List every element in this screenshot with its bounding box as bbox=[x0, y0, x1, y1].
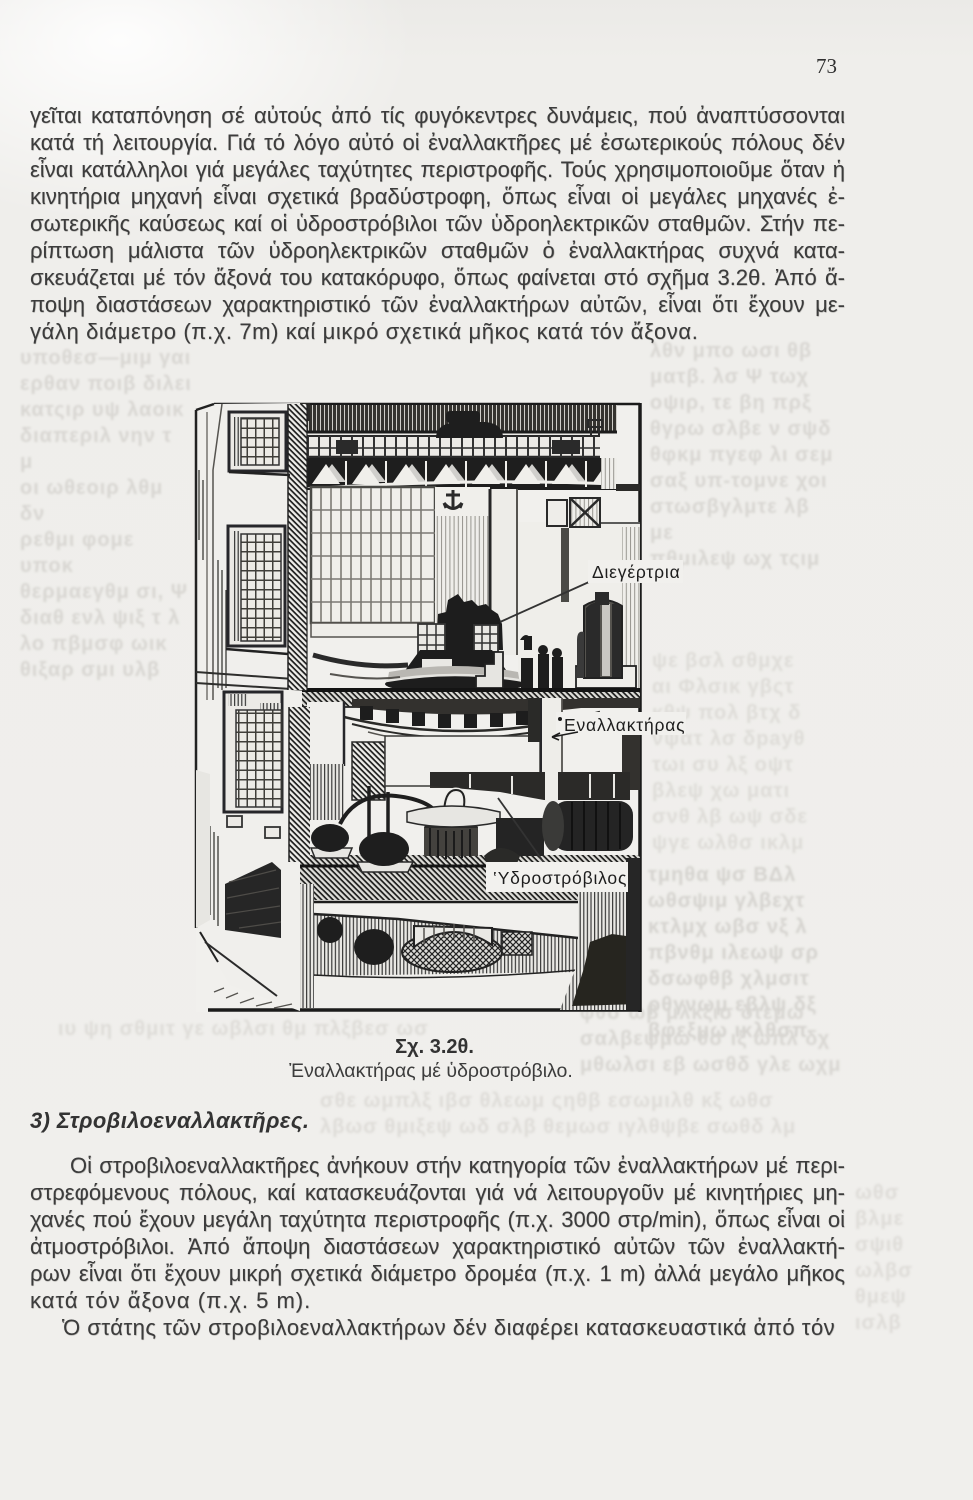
svg-text:Διεγέρτρια: Διεγέρτρια bbox=[592, 562, 681, 582]
svg-text:‛Υδροστρόβιλος: ‛Υδροστρόβιλος bbox=[493, 868, 627, 888]
svg-text:Εναλλακτήρας: Εναλλακτήρας bbox=[564, 715, 685, 735]
